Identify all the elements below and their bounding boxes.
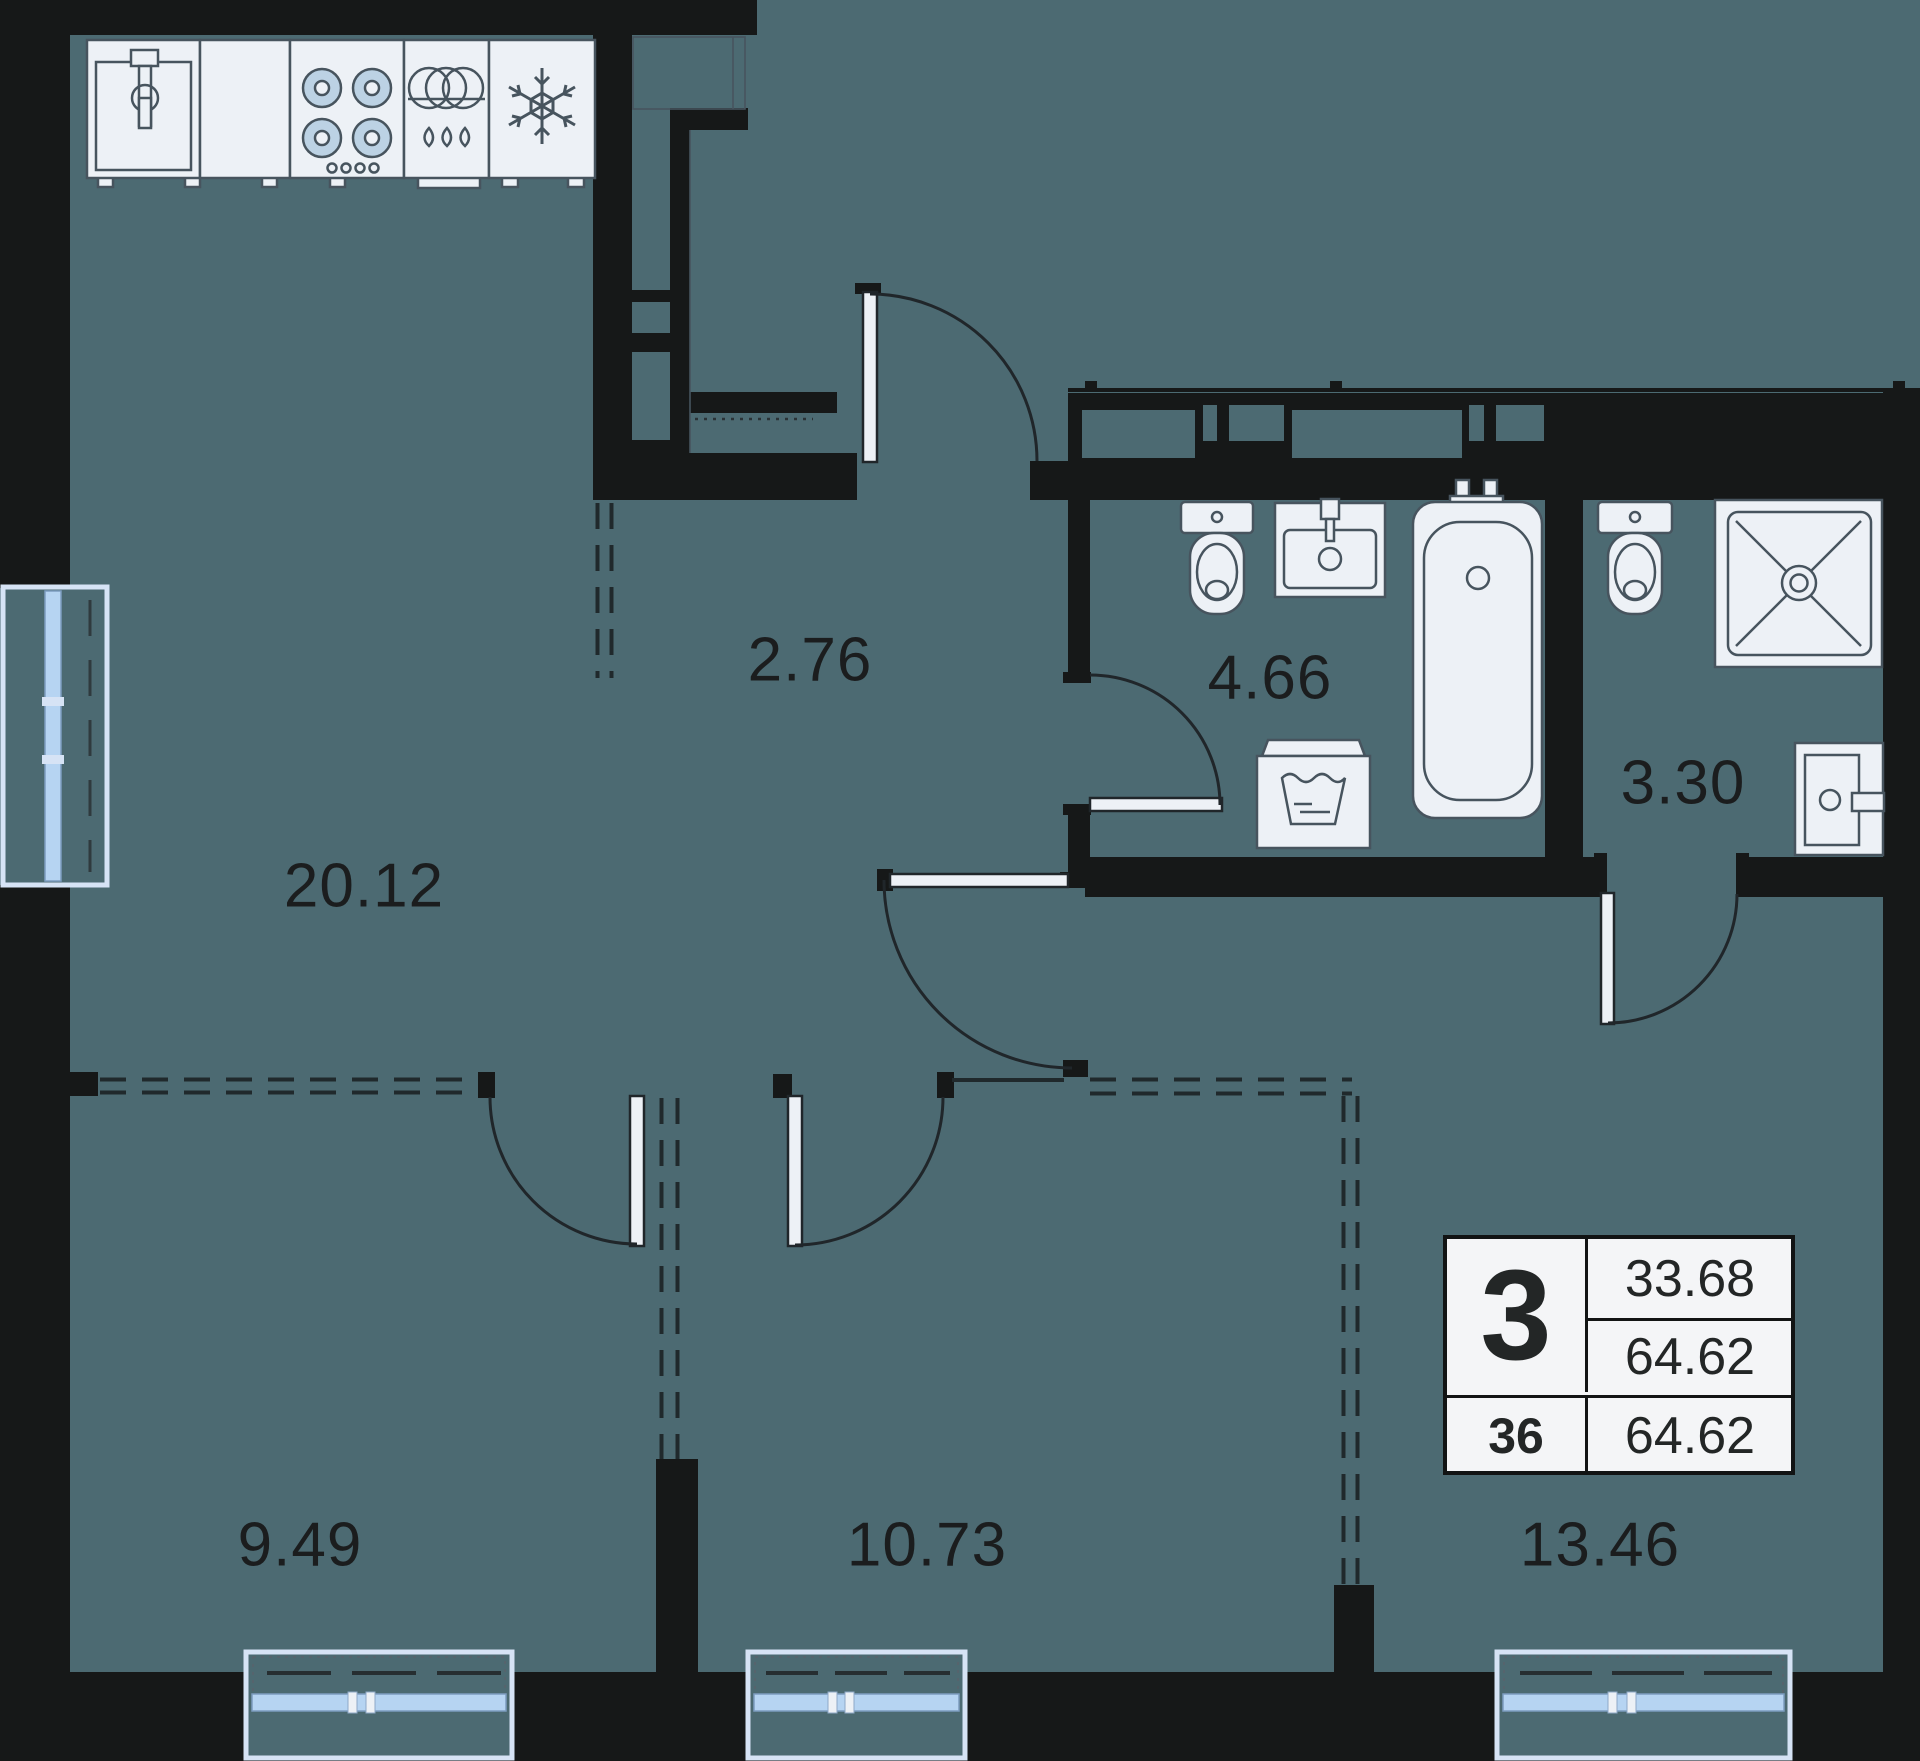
washbasin-icon [1275, 499, 1385, 597]
total-area: 64.62 [1588, 1321, 1792, 1392]
toilet-icon [1598, 502, 1672, 614]
fridge-icon [489, 40, 595, 178]
room-area-label-bedroom-right: 13.46 [1520, 1510, 1680, 1581]
room-area-label-living: 20.12 [284, 851, 444, 922]
washing-machine-icon [1257, 740, 1370, 848]
window-icon [246, 1652, 512, 1758]
room-area-label-bedroom-left: 9.49 [238, 1510, 363, 1581]
window-icon [1497, 1652, 1790, 1758]
room-area-label-bedroom-middle: 10.73 [847, 1510, 1007, 1581]
room-area-label-bathroom: 4.66 [1208, 643, 1333, 714]
sink-icon [87, 40, 200, 178]
total-area-repeat: 64.62 [1588, 1395, 1792, 1474]
stove-icon [290, 40, 404, 178]
room-area-label-hallway: 2.76 [748, 625, 873, 696]
shower-icon [1715, 500, 1882, 667]
bathtub-icon [1413, 480, 1542, 818]
floor-plan: 20.12 2.76 4.66 3.30 9.49 10.73 13.46 3 … [0, 0, 1920, 1761]
toilet-icon [1181, 502, 1253, 614]
kitchen-counter [87, 40, 595, 188]
rooms-count: 3 [1447, 1239, 1588, 1392]
entrance-door-icon [1795, 743, 1884, 855]
living-area: 33.68 [1588, 1239, 1792, 1321]
window-icon [748, 1652, 965, 1758]
counter-top [200, 40, 290, 178]
unit-number: 36 [1447, 1395, 1588, 1474]
apartment-info-box: 3 33.68 64.62 36 64.62 [1443, 1235, 1795, 1475]
room-area-label-shower-room: 3.30 [1621, 748, 1746, 819]
dishwasher-icon [404, 40, 489, 178]
